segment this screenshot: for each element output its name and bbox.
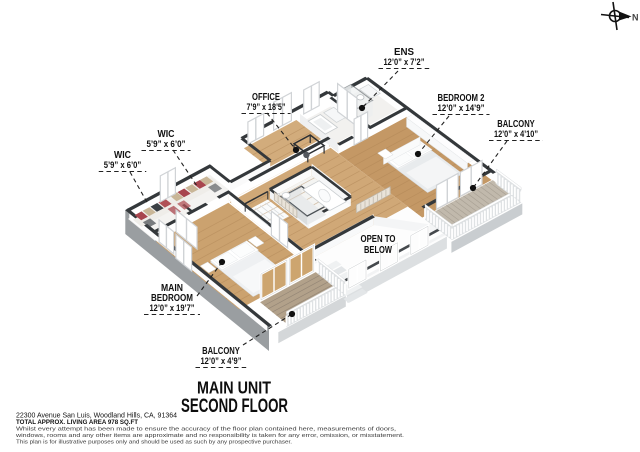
svg-text:5’9” x 6’0”: 5’9” x 6’0” (104, 160, 142, 171)
svg-text:22300 Avenue San Luis, Woodlan: 22300 Avenue San Luis, Woodland Hills, C… (16, 413, 177, 420)
svg-text:12’0” x 4’9”: 12’0” x 4’9” (201, 356, 242, 367)
svg-text:BELOW: BELOW (364, 244, 392, 256)
svg-text:TOTAL APPROX. LIVING AREA 978: TOTAL APPROX. LIVING AREA 978 SQ.FT (16, 420, 138, 426)
svg-text:SECOND FLOOR: SECOND FLOOR (181, 396, 288, 417)
svg-text:12’0” x 19’7”: 12’0” x 19’7” (150, 303, 195, 314)
svg-text:12’0” x 7’2”: 12’0” x 7’2” (384, 57, 425, 68)
svg-text:12’0” x 4’10”: 12’0” x 4’10” (494, 129, 538, 140)
svg-text:MAIN UNIT: MAIN UNIT (197, 378, 271, 398)
svg-text:This plan is for illustrative: This plan is for illustrative purposes o… (16, 440, 292, 446)
svg-text:Whilst every attempt has been: Whilst every attempt has been made to en… (16, 427, 397, 433)
svg-text:5’9” x 6’0”: 5’9” x 6’0” (147, 139, 186, 150)
svg-text:N: N (632, 13, 639, 23)
svg-text:12’0” x 14’9”: 12’0” x 14’9” (438, 103, 485, 114)
svg-text:7’9” x 18’5”: 7’9” x 18’5” (247, 102, 286, 113)
svg-text:windows, rooms and any other i: windows, rooms and any other items are a… (15, 433, 404, 439)
